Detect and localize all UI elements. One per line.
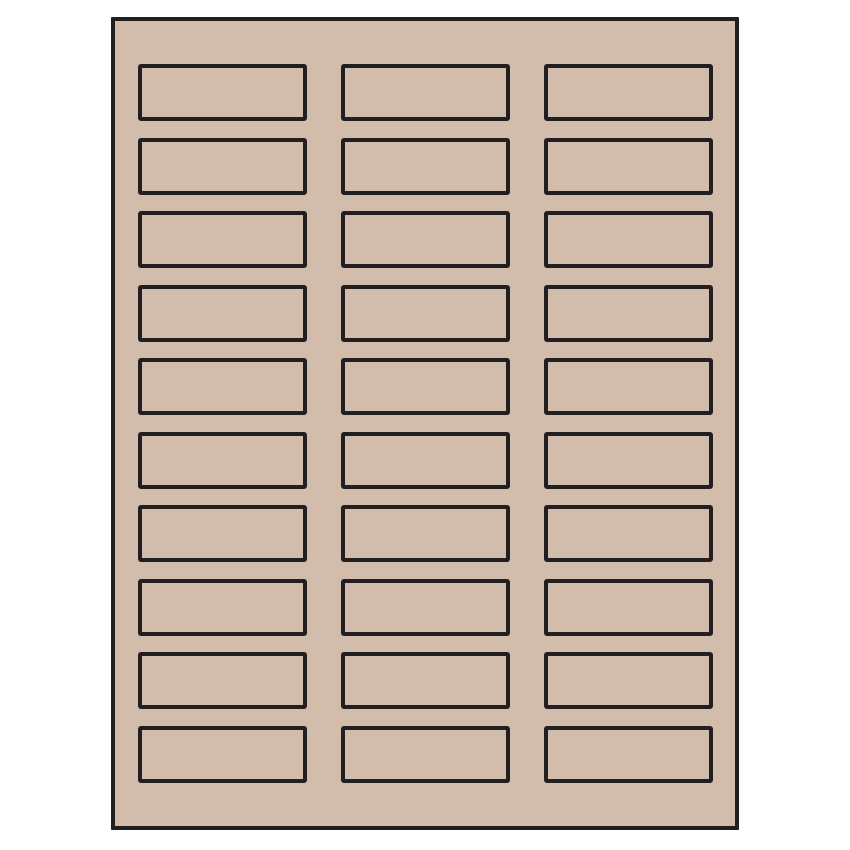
label-cell — [138, 64, 307, 121]
label-cell — [341, 432, 510, 489]
label-cell — [138, 432, 307, 489]
label-cell — [544, 726, 713, 783]
label-cell — [544, 64, 713, 121]
label-cell — [138, 138, 307, 195]
label-cell — [341, 652, 510, 709]
label-sheet — [111, 17, 739, 830]
label-cell — [544, 652, 713, 709]
label-cell — [544, 138, 713, 195]
label-grid — [115, 21, 735, 826]
label-cell — [138, 579, 307, 636]
label-cell — [341, 726, 510, 783]
label-cell — [138, 285, 307, 342]
label-cell — [138, 726, 307, 783]
label-cell — [341, 285, 510, 342]
label-cell — [544, 432, 713, 489]
label-cell — [341, 505, 510, 562]
label-cell — [138, 211, 307, 268]
label-cell — [341, 64, 510, 121]
label-cell — [138, 358, 307, 415]
label-cell — [544, 211, 713, 268]
label-cell — [544, 358, 713, 415]
page-background — [0, 0, 850, 850]
label-cell — [544, 579, 713, 636]
label-cell — [341, 358, 510, 415]
label-cell — [138, 505, 307, 562]
label-cell — [138, 652, 307, 709]
label-cell — [341, 579, 510, 636]
label-cell — [341, 138, 510, 195]
label-cell — [544, 285, 713, 342]
label-cell — [544, 505, 713, 562]
label-cell — [341, 211, 510, 268]
